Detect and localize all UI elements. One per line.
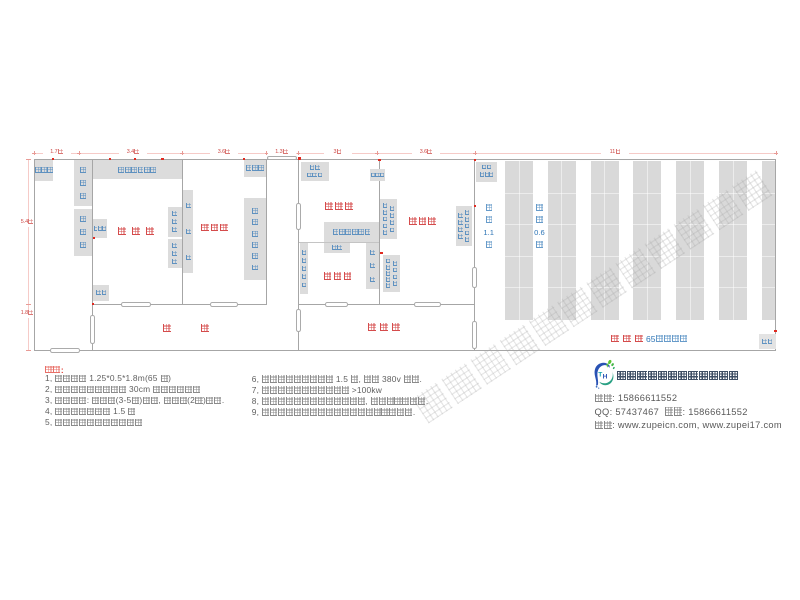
svg-text:H: H [603,373,608,380]
